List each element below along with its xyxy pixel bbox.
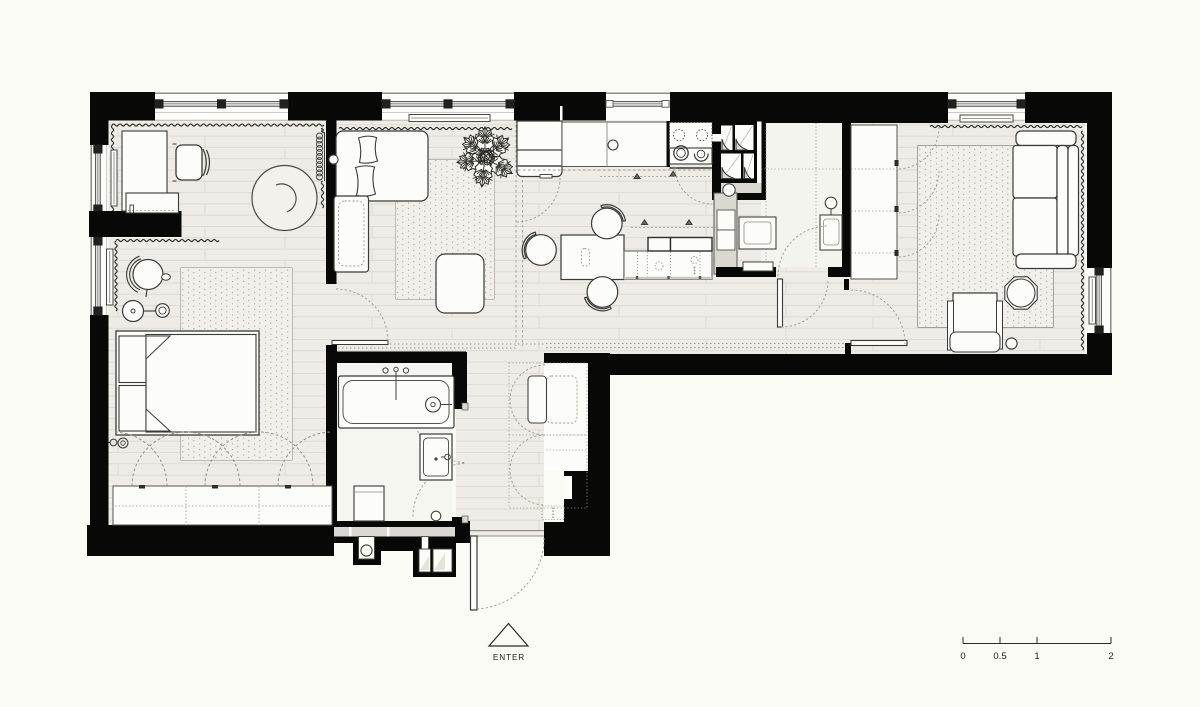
svg-text:1: 1 xyxy=(1034,651,1039,662)
svg-text:0.5: 0.5 xyxy=(993,651,1006,662)
svg-text:0: 0 xyxy=(960,651,965,662)
svg-text:2: 2 xyxy=(1108,651,1113,662)
svg-text:ENTER: ENTER xyxy=(493,653,525,662)
